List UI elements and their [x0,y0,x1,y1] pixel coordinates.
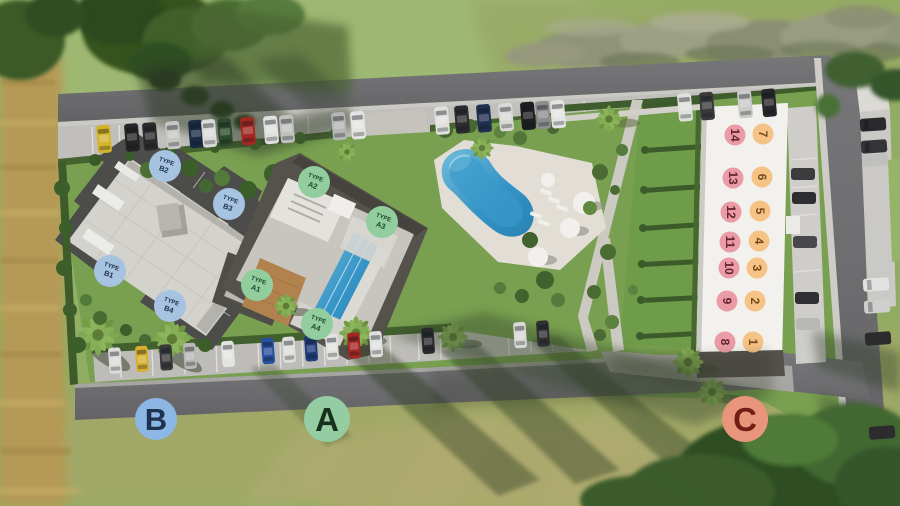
svg-text:13: 13 [726,171,740,185]
svg-text:12: 12 [724,205,738,219]
svg-text:2: 2 [748,298,762,305]
svg-text:7: 7 [756,131,770,138]
svg-text:5: 5 [753,208,767,215]
svg-text:9: 9 [720,298,734,305]
svg-text:3: 3 [750,265,764,272]
svg-text:4: 4 [752,238,766,245]
svg-text:10: 10 [722,261,736,275]
svg-text:11: 11 [723,236,737,249]
svg-text:1: 1 [746,339,760,346]
svg-text:6: 6 [755,174,769,181]
svg-text:C: C [733,401,757,438]
svg-text:A: A [315,401,339,438]
svg-text:14: 14 [728,128,742,142]
svg-text:B: B [145,402,167,437]
svg-text:8: 8 [718,339,732,346]
